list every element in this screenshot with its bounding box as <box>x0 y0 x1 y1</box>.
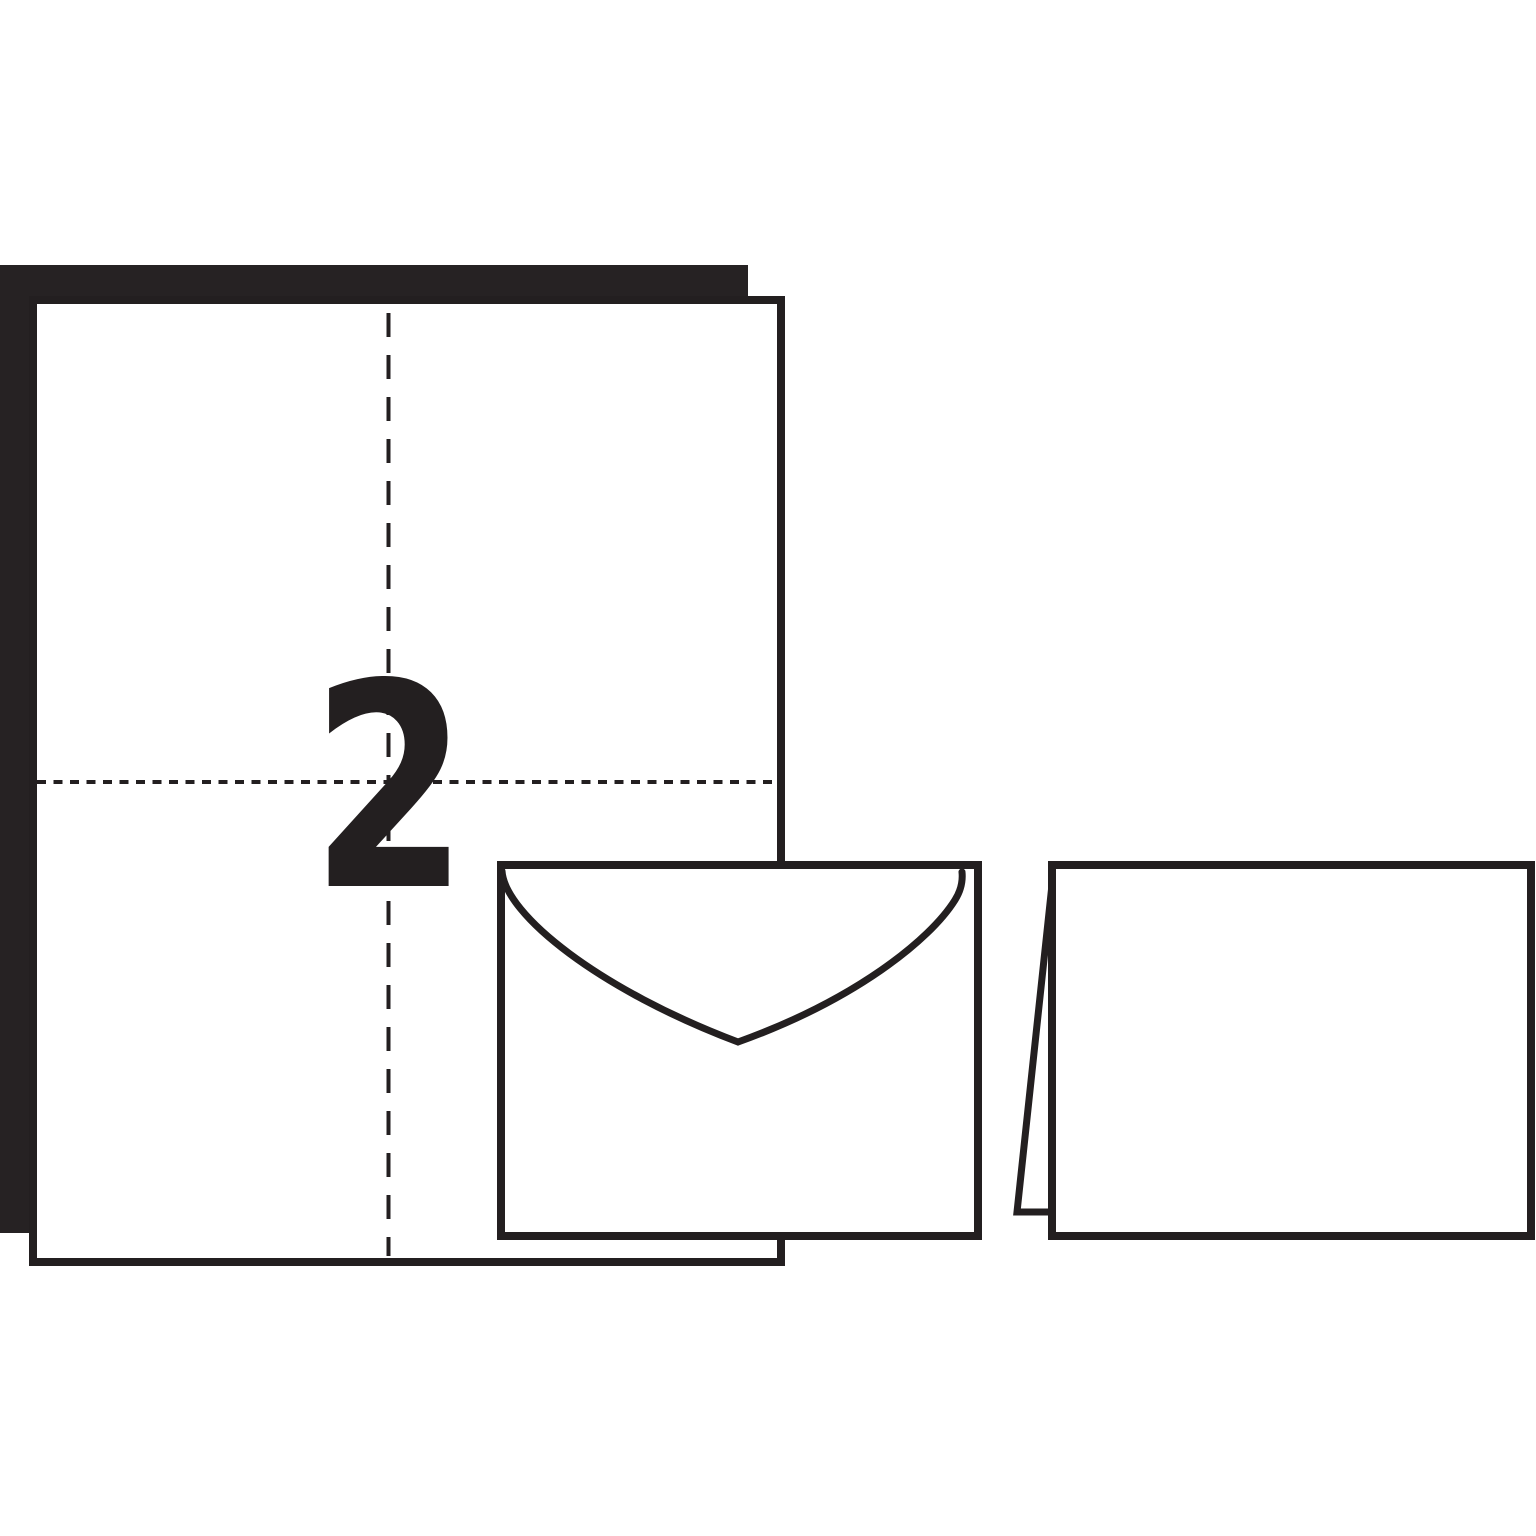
cards-per-sheet-count: 2 <box>311 624 469 953</box>
line-art-diagram: 2 <box>0 0 1536 1536</box>
envelope-body <box>501 865 978 1236</box>
envelope <box>501 865 978 1236</box>
folded-card <box>1017 865 1531 1236</box>
product-illustration: 2 <box>0 0 1536 1536</box>
folded-card-front-panel <box>1052 865 1531 1236</box>
